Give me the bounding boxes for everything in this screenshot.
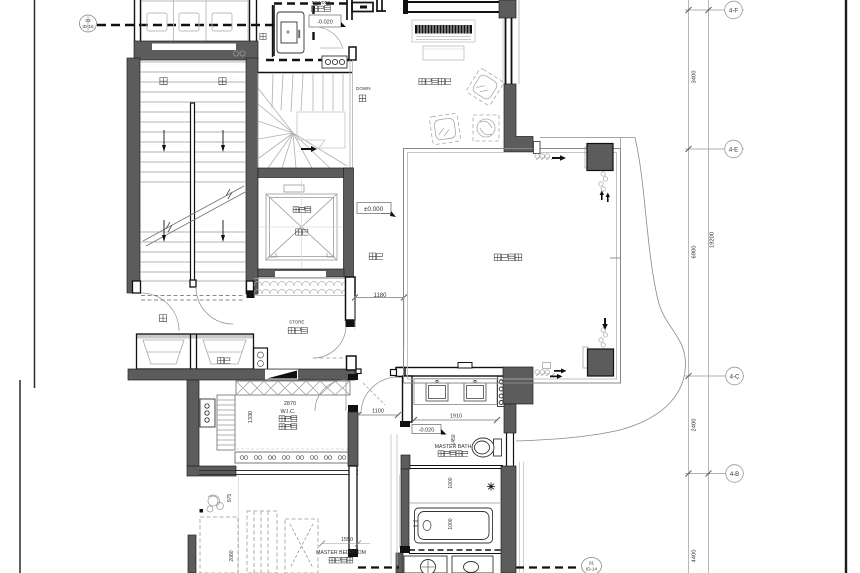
svg-text:-0.020: -0.020 <box>419 428 435 434</box>
svg-text:1100: 1100 <box>372 409 384 415</box>
svg-text:MASTER BATH: MASTER BATH <box>435 444 472 450</box>
svg-text:19200: 19200 <box>710 232 716 248</box>
svg-text:1330: 1330 <box>248 411 254 423</box>
svg-text:1550: 1550 <box>341 537 353 543</box>
svg-text:01: 01 <box>589 561 595 566</box>
svg-text:6900: 6900 <box>692 246 698 259</box>
svg-text:MASTER BEDROOM: MASTER BEDROOM <box>316 550 366 556</box>
svg-text:4-F: 4-F <box>729 8 738 14</box>
svg-text:1910: 1910 <box>450 414 462 420</box>
svg-text:-0.020: -0.020 <box>317 20 333 26</box>
svg-text:2870: 2870 <box>284 401 296 407</box>
svg-text:2400: 2400 <box>692 419 698 432</box>
svg-text:ID-14: ID-14 <box>586 567 598 572</box>
svg-text:W.I.C.: W.I.C. <box>281 409 296 415</box>
svg-text:4-C: 4-C <box>730 374 740 380</box>
svg-text:975: 975 <box>227 494 233 503</box>
svg-text:3400: 3400 <box>692 71 698 84</box>
svg-text:4400: 4400 <box>692 550 698 563</box>
svg-text:STORE: STORE <box>289 320 304 325</box>
svg-text:POWDER: POWDER <box>312 0 331 5</box>
svg-text:1180: 1180 <box>374 293 388 299</box>
svg-text:DOWN: DOWN <box>356 86 371 91</box>
svg-text:±0.000: ±0.000 <box>364 206 384 213</box>
svg-text:4-E: 4-E <box>729 147 738 153</box>
svg-text:2080: 2080 <box>229 550 235 561</box>
svg-text:4-B: 4-B <box>730 472 739 478</box>
svg-text:1000: 1000 <box>448 477 454 488</box>
svg-text:1000: 1000 <box>448 518 454 529</box>
